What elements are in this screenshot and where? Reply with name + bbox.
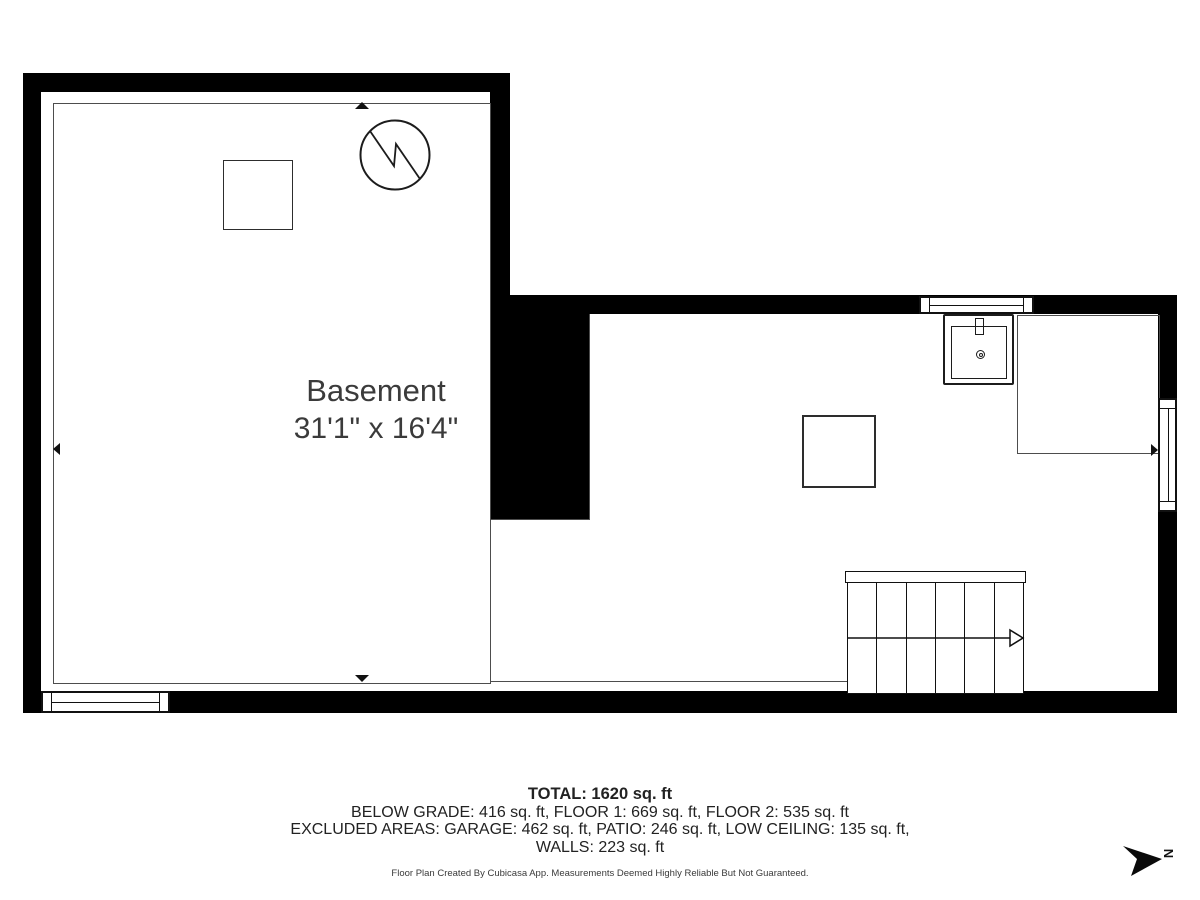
wall-middle-vertical — [490, 73, 510, 313]
window-right-wall — [1158, 398, 1177, 512]
dimension-arrow-down-icon — [355, 675, 369, 682]
window-frame-line — [929, 297, 930, 313]
furniture-square-right-room — [802, 415, 876, 488]
low-ceiling-area-outline — [1017, 315, 1160, 454]
sink-icon — [943, 314, 1014, 385]
wall-left-exterior — [23, 73, 41, 713]
window-frame-line — [1023, 297, 1024, 313]
wall-bottom-exterior — [23, 691, 1177, 713]
window-frame-line — [159, 692, 160, 712]
room-dimensions: 31'1" x 16'4" — [216, 410, 536, 448]
window-frame-line — [1159, 408, 1176, 409]
room-label: Basement 31'1" x 16'4" — [216, 372, 536, 448]
window-glass-line — [1168, 408, 1169, 502]
wall-top-left-room — [23, 73, 510, 92]
summary-areas: BELOW GRADE: 416 sq. ft, FLOOR 1: 669 sq… — [0, 804, 1200, 822]
window-frame-line — [1159, 501, 1176, 502]
room-name: Basement — [216, 372, 536, 410]
window-top-right — [919, 296, 1034, 314]
sink-drain — [976, 350, 985, 359]
wall-top-right-room — [490, 295, 1177, 314]
sink-drain-inner — [979, 353, 983, 357]
dimension-arrow-right-icon — [1151, 444, 1158, 456]
north-arrow-icon — [1115, 838, 1185, 883]
floor-plan-page: Basement 31'1" x 16'4" TOTAL: 1620 sq. f… — [0, 0, 1200, 900]
summary-excluded: EXCLUDED AREAS: GARAGE: 462 sq. ft, PATI… — [0, 821, 1200, 839]
furniture-square-left-room — [223, 160, 293, 230]
window-glass-line — [51, 702, 160, 703]
summary-total: TOTAL: 1620 sq. ft — [0, 786, 1200, 804]
window-glass-line — [929, 305, 1024, 306]
disclaimer-text: Floor Plan Created By Cubicasa App. Meas… — [0, 865, 1200, 883]
dimension-arrow-left-icon — [53, 443, 60, 455]
stairs-direction-arrow-icon — [845, 571, 1026, 694]
water-heater-icon — [358, 118, 433, 193]
right-room-floor-line — [490, 681, 847, 682]
dimension-arrow-up-icon — [355, 102, 369, 109]
window-bottom-left — [41, 691, 170, 713]
area-summary: TOTAL: 1620 sq. ft BELOW GRADE: 416 sq. … — [0, 786, 1200, 883]
compass: N — [1115, 838, 1185, 883]
summary-walls: WALLS: 223 sq. ft — [0, 839, 1200, 857]
staircase — [845, 571, 1026, 694]
window-frame-line — [51, 692, 52, 712]
north-label: N — [1161, 849, 1176, 858]
